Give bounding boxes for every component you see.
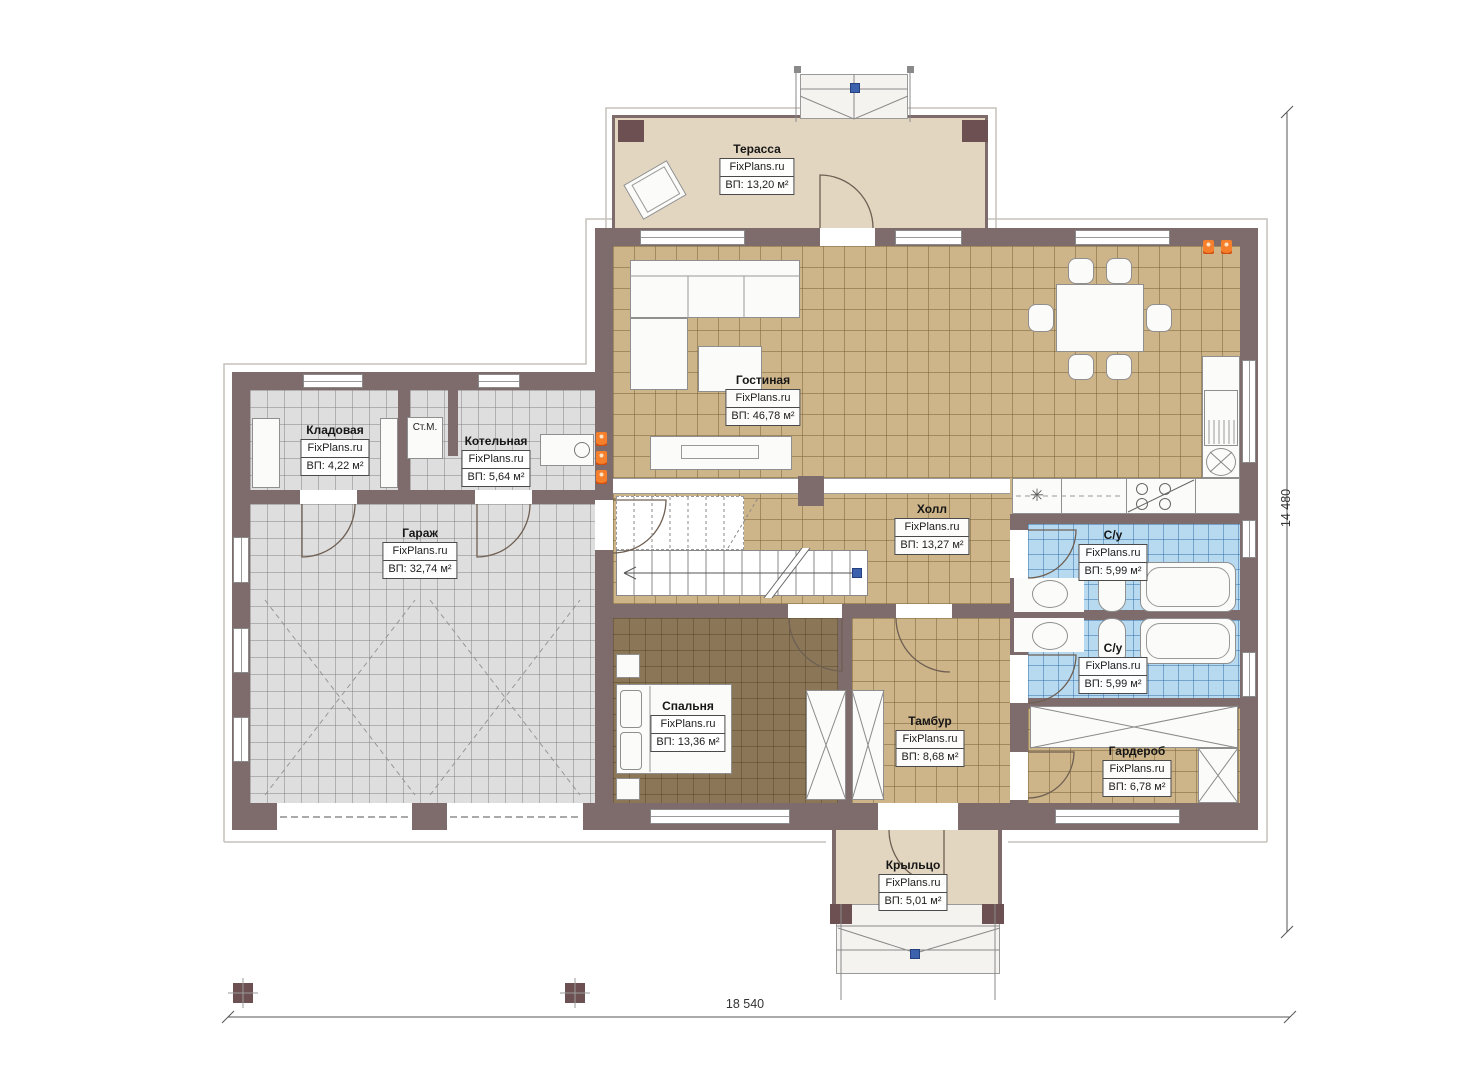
- wall-bath-top: [1028, 514, 1240, 524]
- room-name: Тамбур: [895, 714, 964, 728]
- door-opening-bath1: [1010, 530, 1028, 578]
- wall-pier-living-hall: [798, 476, 824, 506]
- toilet: [1032, 580, 1068, 608]
- room-name: Холл: [894, 502, 969, 516]
- room-area: ВП: 5,99 м²: [1079, 563, 1146, 580]
- label-box: FixPlans.ru ВП: 46,78 м²: [725, 389, 800, 426]
- room-area: ВП: 13,27 м²: [895, 537, 968, 554]
- door-opening-vestibule: [896, 604, 952, 618]
- room-name: Спальня: [650, 699, 725, 713]
- pillow: [620, 690, 642, 728]
- porch-post: [982, 904, 1004, 924]
- tv: [681, 445, 759, 459]
- room-label-living: Гостиная FixPlans.ru ВП: 46,78 м²: [725, 373, 800, 426]
- watermark: FixPlans.ru: [301, 440, 368, 458]
- door-opening-bedroom: [788, 604, 842, 618]
- door-opening-terrace: [820, 228, 875, 246]
- porch-steps: [836, 904, 1000, 974]
- room-name: С/у: [1078, 528, 1147, 542]
- boiler-unit: [540, 434, 594, 466]
- site-post: [565, 983, 585, 1003]
- fridge: ✳: [1012, 478, 1062, 514]
- room-name: С/у: [1078, 641, 1147, 655]
- kitchen-sink: [1206, 448, 1236, 476]
- room-area: ВП: 5,01 м²: [879, 893, 946, 910]
- door-opening-entrance: [878, 803, 958, 830]
- window: [478, 374, 520, 388]
- room-name: Котельная: [461, 434, 530, 448]
- label-box: FixPlans.ru ВП: 6,78 м²: [1102, 760, 1171, 797]
- window: [895, 230, 962, 245]
- room-area: ВП: 6,78 м²: [1103, 779, 1170, 796]
- stair-upper-flight: [616, 496, 744, 550]
- terrace-post: [618, 120, 644, 142]
- room-label-garage: Гараж FixPlans.ru ВП: 32,74 м²: [382, 526, 457, 579]
- watermark: FixPlans.ru: [383, 543, 456, 561]
- toilet: [1032, 622, 1068, 650]
- room-area: ВП: 5,99 м²: [1079, 676, 1146, 693]
- door-opening-storage: [300, 490, 357, 504]
- terrace-steps: [800, 74, 908, 119]
- closet-wardrobe-right: [1198, 748, 1238, 803]
- chair: [1068, 258, 1094, 284]
- closet-wardrobe-top: [1030, 706, 1238, 748]
- label-box: FixPlans.ru ВП: 32,74 м²: [382, 542, 457, 579]
- storage-shelf: [252, 418, 280, 488]
- watermark: FixPlans.ru: [1079, 545, 1146, 563]
- room-name: Кладовая: [300, 423, 369, 437]
- room-label-bath1: С/у FixPlans.ru ВП: 5,99 м²: [1078, 528, 1147, 581]
- chair: [1028, 304, 1054, 332]
- label-box: FixPlans.ru ВП: 5,64 м²: [461, 450, 530, 487]
- closet-vestibule: [852, 690, 884, 800]
- sofa-chaise: [630, 318, 688, 390]
- garage-door-opening: [447, 803, 583, 830]
- bathtub: [1140, 618, 1236, 664]
- watermark: FixPlans.ru: [726, 390, 799, 408]
- window: [233, 628, 249, 673]
- marker-dot: [852, 568, 862, 578]
- label-box: FixPlans.ru ВП: 13,27 м²: [894, 518, 969, 555]
- chair: [1106, 258, 1132, 284]
- marker-dot: [850, 83, 860, 93]
- watermark: FixPlans.ru: [720, 159, 793, 177]
- boiler-dial: [574, 442, 590, 458]
- door-opening-hall: [595, 500, 613, 550]
- room-name: Гостиная: [725, 373, 800, 387]
- heater-icon: [596, 432, 607, 446]
- window: [1075, 230, 1170, 245]
- door-opening-bath2: [1010, 655, 1028, 703]
- label-box: FixPlans.ru ВП: 13,20 м²: [719, 158, 794, 195]
- room-label-porch: Крыльцо FixPlans.ru ВП: 5,01 м²: [878, 858, 947, 911]
- room-name: Гараж: [382, 526, 457, 540]
- heater-icon: [1203, 240, 1214, 254]
- sofa: [630, 260, 800, 318]
- heater-icon: [596, 451, 607, 465]
- washing-machine: Ст.М.: [407, 417, 443, 459]
- room-name: Крыльцо: [878, 858, 947, 872]
- room-area: ВП: 5,64 м²: [462, 469, 529, 486]
- window: [233, 717, 249, 762]
- terrace-rail-post: [907, 66, 914, 73]
- window: [303, 374, 363, 388]
- watermark: FixPlans.ru: [462, 451, 529, 469]
- closet-bedroom: [806, 690, 846, 800]
- room-label-storage: Кладовая FixPlans.ru ВП: 4,22 м²: [300, 423, 369, 476]
- pillow: [620, 732, 642, 770]
- fridge-snowflake-icon: ✳: [1030, 486, 1044, 505]
- watermark: FixPlans.ru: [895, 519, 968, 537]
- bathtub-basin: [1146, 567, 1230, 607]
- room-area: ВП: 8,68 м²: [896, 749, 963, 766]
- room-label-terrace: Терасса FixPlans.ru ВП: 13,20 м²: [719, 142, 794, 195]
- room-label-bedroom: Спальня FixPlans.ru ВП: 13,36 м²: [650, 699, 725, 752]
- storage-shelf: [380, 418, 398, 488]
- watermark: FixPlans.ru: [1103, 761, 1170, 779]
- room-label-wardrobe: Гардероб FixPlans.ru ВП: 6,78 м²: [1102, 744, 1171, 797]
- window: [1055, 809, 1180, 824]
- wall-wing-top: [232, 372, 595, 390]
- room-name: Терасса: [719, 142, 794, 156]
- terrace-rail-post: [794, 66, 801, 73]
- chair: [1106, 354, 1132, 380]
- room-area: ВП: 46,78 м²: [726, 408, 799, 425]
- room-area: ВП: 13,20 м²: [720, 177, 793, 194]
- window: [650, 809, 790, 824]
- post-ticks: [228, 978, 590, 1008]
- room-area: ВП: 13,36 м²: [651, 734, 724, 751]
- chair: [1068, 354, 1094, 380]
- label-box: FixPlans.ru ВП: 5,01 м²: [878, 874, 947, 911]
- window: [640, 230, 745, 245]
- watermark: FixPlans.ru: [651, 716, 724, 734]
- nightstand: [616, 654, 640, 678]
- site-post: [233, 983, 253, 1003]
- room-name: Гардероб: [1102, 744, 1171, 758]
- stove: [1126, 478, 1196, 514]
- room-label-bath2: С/у FixPlans.ru ВП: 5,99 м²: [1078, 641, 1147, 694]
- label-box: FixPlans.ru ВП: 13,36 м²: [650, 715, 725, 752]
- window: [233, 537, 249, 583]
- window: [1242, 360, 1256, 463]
- dining-table: [1056, 284, 1144, 352]
- porch-post: [830, 904, 852, 924]
- label-box: FixPlans.ru ВП: 5,99 м²: [1078, 657, 1147, 694]
- room-area: ВП: 32,74 м²: [383, 561, 456, 578]
- kitchen-cabinet: [1204, 390, 1238, 446]
- washing-machine-label: Ст.М.: [413, 422, 438, 433]
- floor-plan: ✳ Ст.М.: [0, 0, 1474, 1080]
- window: [1242, 520, 1256, 558]
- terrace-post: [962, 120, 988, 142]
- dimension-height: 14 480: [1279, 473, 1295, 543]
- bathtub-basin: [1146, 623, 1230, 659]
- room-label-hall: Холл FixPlans.ru ВП: 13,27 м²: [894, 502, 969, 555]
- tv-stand: [650, 436, 792, 470]
- heater-icon: [1221, 240, 1232, 254]
- heater-icon: [596, 470, 607, 484]
- label-box: FixPlans.ru ВП: 4,22 м²: [300, 439, 369, 476]
- wall-niche-boiler: [448, 390, 458, 456]
- garage-door-opening: [277, 803, 412, 830]
- door-opening-boiler: [475, 490, 532, 504]
- watermark: FixPlans.ru: [896, 731, 963, 749]
- watermark: FixPlans.ru: [879, 875, 946, 893]
- chair: [1146, 304, 1172, 332]
- marker-dot: [910, 949, 920, 959]
- window: [1242, 652, 1256, 697]
- watermark: FixPlans.ru: [1079, 658, 1146, 676]
- door-opening-wardrobe: [1010, 752, 1028, 800]
- room-area: ВП: 4,22 м²: [301, 458, 368, 475]
- label-box: FixPlans.ru ВП: 8,68 м²: [895, 730, 964, 767]
- dimension-width: 18 540: [700, 997, 790, 1011]
- stair-lower-flight: [616, 550, 868, 596]
- label-box: FixPlans.ru ВП: 5,99 м²: [1078, 544, 1147, 581]
- bathtub: [1140, 562, 1236, 612]
- room-label-boiler: Котельная FixPlans.ru ВП: 5,64 м²: [461, 434, 530, 487]
- room-label-vestibule: Тамбур FixPlans.ru ВП: 8,68 м²: [895, 714, 964, 767]
- nightstand: [616, 778, 640, 800]
